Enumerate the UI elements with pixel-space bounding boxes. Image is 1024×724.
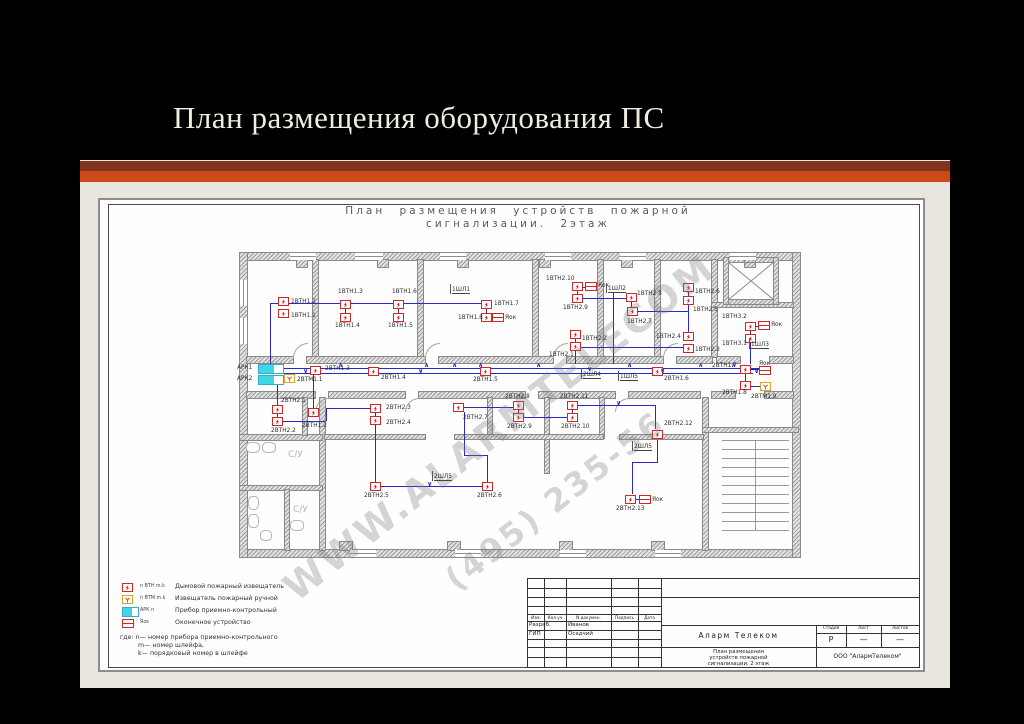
device-label: 2ВТН2.5 [364, 493, 389, 499]
wire [487, 455, 488, 483]
direction-arrow: ∨ [427, 481, 432, 487]
device-label: 1ВТН2.4 [656, 334, 681, 340]
smoke-detector [572, 294, 583, 303]
wire [657, 440, 658, 462]
wall [448, 542, 460, 550]
smoke-detector [340, 313, 351, 322]
device-label: 1ВТН1.8 [458, 315, 483, 321]
tb-name-2: Осадчий [568, 631, 593, 637]
terminal-device-icon [122, 619, 134, 628]
window [440, 253, 466, 260]
device-label: 1ВТН1.2 [291, 299, 316, 305]
wall [655, 260, 660, 357]
loop-flag: 2ШЛ5 [634, 444, 652, 451]
smoke-detector [627, 307, 638, 316]
tb-company: Аларм Телеком [661, 631, 816, 640]
device-label: 2ВТН2.13 [616, 506, 644, 512]
smoke-detector [393, 313, 404, 322]
smoke-detector [308, 408, 319, 417]
wall [793, 253, 800, 557]
tb-col-izm: Изм. [528, 615, 544, 620]
device-label: 1ВТН1.7 [494, 301, 519, 307]
smoke-detector [625, 495, 636, 504]
smoke-detector [683, 283, 694, 292]
smoke-detector [683, 332, 694, 341]
tb-stage-value: Р [816, 635, 846, 644]
tb-sheet-value: — [846, 635, 881, 644]
direction-arrow: ∧ [452, 362, 457, 368]
wall [567, 357, 663, 363]
manual-call-point [760, 382, 771, 391]
terminal-device [639, 495, 651, 504]
smoke-detector [740, 365, 751, 374]
device-label: 2ВТМ1.9 [751, 394, 776, 400]
direction-arrow: ∨ [616, 400, 621, 406]
wall [297, 260, 307, 267]
door-arc [293, 343, 308, 358]
device-label: Яок [652, 497, 663, 503]
terminal-device [758, 321, 770, 330]
window [455, 550, 481, 557]
manual-call-point [284, 374, 295, 383]
loop-flag: 1ШЛ2 [608, 286, 626, 293]
device-label: 1ВТН1.4 [335, 323, 360, 329]
wall [285, 490, 289, 550]
tb-role-2: ГИП [529, 631, 541, 637]
legend-notes: где: n— номер прибора приемно-контрольно… [120, 634, 380, 658]
wall [540, 260, 550, 267]
device-label: 2ВТМ1.1 [297, 377, 322, 383]
wire [270, 303, 271, 366]
stair-divider [755, 440, 756, 531]
wall [240, 253, 800, 260]
wall [307, 357, 425, 363]
room-label: С/У [288, 450, 303, 460]
window [620, 253, 646, 260]
direction-arrow: ∨ [754, 368, 759, 374]
device-label: 1ВТН2.6 [695, 289, 720, 295]
device-label: 2ВТН2.1 [281, 398, 306, 404]
wall [560, 542, 572, 550]
wall [455, 435, 603, 439]
legend-desc: Оконечное устройство [175, 619, 251, 626]
device-label: 1ВТН2.9 [563, 305, 588, 311]
legend-desc: Извещатель пожарный ручной [175, 595, 278, 602]
smoke-detector [652, 430, 663, 439]
device-label: Яок [759, 361, 770, 367]
wall [770, 357, 793, 363]
wire [655, 405, 656, 429]
legend-code: n ВТН m.k [140, 584, 165, 589]
direction-arrow: ∧ [424, 362, 429, 368]
wall [622, 260, 632, 267]
window [655, 550, 681, 557]
window [730, 253, 756, 260]
tb-col-data: Дата [638, 615, 661, 620]
room-label: С/У [293, 505, 308, 515]
wire [277, 383, 278, 407]
device-label: 1ВТН1.6 [392, 289, 417, 295]
wall [340, 542, 352, 550]
legend-row-terminal: Яок Оконечное устройство [120, 618, 380, 630]
device-label: 2ВТН1.2 [302, 423, 327, 429]
wire [636, 311, 688, 312]
window [545, 253, 571, 260]
smoke-detector [370, 416, 381, 425]
tb-doc-title-3: сигнализации. 2 этаж [661, 661, 816, 667]
wire [632, 462, 658, 463]
door-arc [663, 343, 678, 358]
control-panel-icon [122, 607, 139, 617]
bathroom-fixture [260, 530, 272, 541]
wire [581, 298, 631, 299]
wire [581, 347, 684, 348]
device-label: 1ВТН3.2 [722, 314, 747, 320]
legend-code: n ВТМ m.k [140, 596, 165, 601]
wall [488, 398, 492, 438]
terminal-device [492, 313, 504, 322]
wire [283, 368, 763, 369]
smoke-detector [683, 296, 694, 305]
wire [523, 417, 567, 418]
smoke-detector [570, 342, 581, 351]
smoke-detector [567, 413, 578, 422]
direction-arrow: ∨ [660, 368, 665, 374]
wall [313, 260, 318, 357]
device-label: 1ВТН1.3 [338, 289, 363, 295]
loop-flag: 1ШЛ3 [751, 342, 769, 349]
legend-code: АРК n [140, 608, 154, 613]
device-label: 1ВТН2.2 [582, 336, 607, 342]
device-label: 2ВТН2.11 [560, 394, 588, 400]
bathroom-fixture [248, 496, 259, 510]
device-label: 1ВТН2.5 [693, 307, 718, 313]
direction-arrow: ∨ [418, 368, 423, 374]
device-label: 2ВТН2.8 [505, 394, 530, 400]
smoke-detector [340, 300, 351, 309]
wire [375, 423, 376, 483]
wire [281, 421, 326, 422]
device-label: 1ВТН2.10 [546, 276, 574, 282]
panel-label: АРК1 [237, 365, 252, 371]
window [240, 318, 247, 344]
smoke-detector [626, 293, 637, 302]
window [240, 280, 247, 306]
device-label: 1ВТН2.1 [549, 352, 574, 358]
tb-col-podpis: Подпись [611, 615, 638, 620]
tb-role-1: Разраб. [529, 622, 551, 628]
device-label: 2ВТН2.6 [477, 493, 502, 499]
wire [464, 455, 487, 456]
loop-flag: 2ШЛ4 [583, 372, 601, 379]
wall [240, 486, 322, 490]
wire [575, 349, 576, 364]
slide-background: План размещения оборудования ПС План раз… [0, 0, 1024, 724]
device-label: 1ВТН2.7 [627, 319, 652, 325]
tb-col-koluch: Кол.уч [544, 615, 566, 620]
direction-arrow: ∨ [303, 368, 308, 374]
device-label: 2ВТН1.4 [381, 375, 406, 381]
terminal-device [759, 366, 771, 375]
window [290, 253, 316, 260]
wire [326, 408, 327, 421]
wall [533, 260, 538, 357]
device-label: 1ВТН3.1 [722, 341, 747, 347]
control-panel [258, 375, 284, 385]
legend-desc: Прибор приемно-контрольный [175, 607, 277, 614]
legend: n ВТН m.k Дымовой пожарный извещатель n … [120, 582, 380, 658]
wire [283, 373, 753, 374]
smoke-detector [481, 300, 492, 309]
device-label: 1ВТН1.5 [388, 323, 413, 329]
wall [774, 258, 778, 304]
elevator-shaft-icon [728, 262, 774, 300]
legend-note: m— номер шлейфа, [120, 642, 380, 650]
smoke-detector [278, 309, 289, 318]
bathroom-fixture [290, 520, 304, 531]
device-label: 2ВТН1.5 [473, 377, 498, 383]
legend-desc: Дымовой пожарный извещатель [175, 583, 284, 590]
loop-flag: 2ШЛ5 [434, 474, 452, 481]
wall [458, 260, 468, 267]
wall [703, 398, 708, 550]
legend-row-smoke: n ВТН m.k Дымовой пожарный извещатель [120, 582, 380, 594]
device-label: 1ВТН1.1 [291, 313, 316, 319]
device-label: 2ВТН2.7 [463, 415, 488, 421]
wall [240, 550, 800, 557]
smoke-detector [513, 401, 524, 410]
direction-arrow: ∧ [698, 362, 703, 368]
device-label: 2ВТН1.8 [722, 390, 747, 396]
smoke-detector [278, 297, 289, 306]
tb-org: ООО "АлармТелеком" [816, 653, 919, 660]
smoke-detector [482, 482, 493, 491]
wall [329, 392, 405, 398]
smoke-detector [570, 330, 581, 339]
smoke-detector [368, 367, 379, 376]
device-label: Яок [505, 315, 516, 321]
title-block: Изм. Кол.уч N докумен. Подпись Дата Разр… [527, 578, 920, 668]
wire [613, 292, 614, 364]
legend-row-manual: n ВТМ m.k Извещатель пожарный ручной [120, 594, 380, 606]
smoke-detector [567, 401, 578, 410]
tb-sheets-value: — [881, 635, 919, 644]
smoke-detector [370, 482, 381, 491]
bathroom-fixture [248, 514, 259, 528]
device-label: 2ВТН2.9 [507, 424, 532, 430]
wall [240, 435, 322, 440]
wall [600, 398, 604, 438]
smoke-detector [683, 344, 694, 353]
wall [598, 260, 603, 357]
window [350, 550, 376, 557]
device-label: 2ВТН2.3 [386, 405, 411, 411]
device-label: 2ВТН1.7 [712, 363, 737, 369]
loop-flag: 1ШЛ1 [452, 287, 470, 294]
tb-sheets-label: Листов [881, 626, 919, 631]
smoke-detector-icon [122, 583, 133, 592]
device-label: 2ВТН2.10 [561, 424, 589, 430]
wall [418, 260, 423, 357]
direction-arrow: ∧ [478, 362, 483, 368]
wire [326, 408, 371, 409]
device-label: 2ВТН2.12 [664, 421, 692, 427]
smoke-detector [745, 322, 756, 331]
panel-label: АРК2 [237, 376, 252, 382]
smoke-detector [453, 403, 464, 412]
tb-sheet-label: Лист [846, 626, 881, 631]
device-label: 2ВТН1.6 [664, 376, 689, 382]
control-panel [258, 364, 284, 374]
smoke-detector [572, 282, 583, 291]
wire [463, 407, 513, 408]
device-label: 2ВТН2.2 [271, 428, 296, 434]
tb-name-1: Иванов [568, 622, 589, 628]
wall [703, 428, 798, 432]
smoke-detector [370, 404, 381, 413]
wall [677, 357, 712, 363]
direction-arrow: ∧ [627, 362, 632, 368]
smoke-detector [272, 417, 283, 426]
smoke-detector [310, 366, 321, 375]
legend-row-panel: АРК n Прибор приемно-контрольный [120, 606, 380, 618]
tb-stage-label: Стадия [816, 626, 846, 631]
wall [378, 260, 388, 267]
legend-note: k— порядковый номер в шлейфе [120, 650, 380, 658]
device-label: 1ВТН2.3 [695, 347, 720, 353]
terminal-device [585, 282, 597, 291]
device-label: Яок [771, 322, 782, 328]
smoke-detector [272, 405, 283, 414]
device-label: 2ВТН1.3 [325, 366, 350, 372]
smoke-detector [393, 300, 404, 309]
bathroom-fixture [246, 442, 260, 453]
device-label: 1ВТН2.8 [637, 291, 662, 297]
wall [724, 300, 778, 304]
wall [652, 542, 664, 550]
smoke-detector [513, 413, 524, 422]
manual-call-point-icon [122, 595, 133, 604]
wire [632, 462, 633, 494]
smoke-detector [740, 381, 751, 390]
loop-flag: 1ШЛ5 [620, 374, 638, 381]
device-label: 2ВТН2.4 [386, 420, 411, 426]
legend-code: Яок [140, 620, 149, 625]
tb-col-ndoc: N докумен. [566, 615, 611, 620]
legend-note: где: n— номер прибора приемно-контрольно… [120, 634, 380, 642]
window [355, 253, 383, 260]
window [560, 550, 586, 557]
wall [629, 392, 700, 398]
direction-arrow: ∧ [536, 362, 541, 368]
door-arc [425, 343, 440, 358]
bathroom-fixture [262, 442, 276, 453]
